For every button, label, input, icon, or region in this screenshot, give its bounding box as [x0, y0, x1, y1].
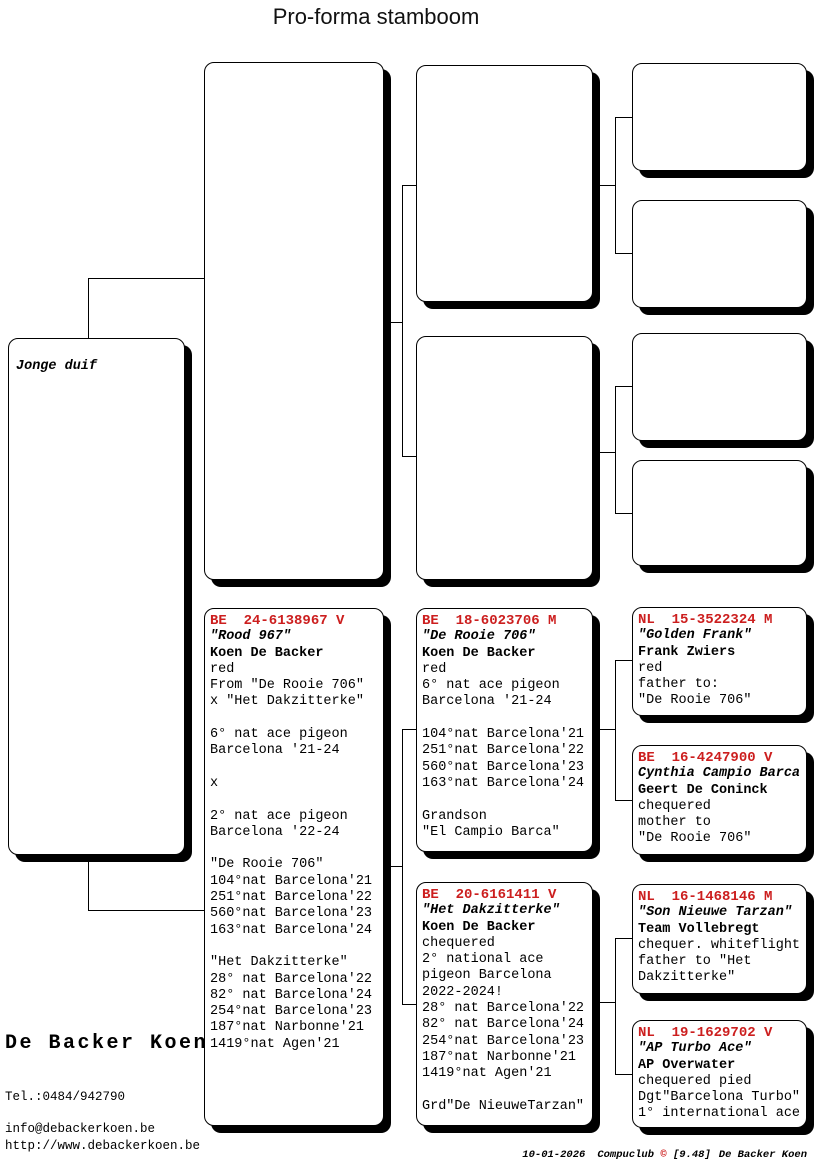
pedigree-box-dam-sire-dam: BE 16-4247900 V Cynthia Campio Barca Gee… [632, 745, 807, 855]
connector-line [615, 1074, 632, 1075]
connector-line [88, 855, 89, 911]
program-version: [9.48] [673, 1149, 711, 1161]
connector-line [615, 800, 632, 801]
connector-line [88, 910, 204, 911]
pedigree-box-sire-sire-empty [416, 65, 593, 302]
connector-line [402, 729, 403, 1005]
ring-number: BE 18-6023706 M [422, 613, 590, 629]
pigeon-name: "De Rooie 706" [422, 629, 590, 645]
pigeon-owner: Koen De Backer [210, 646, 381, 662]
pigeon-name: "Golden Frank" [638, 628, 804, 644]
connector-line [88, 278, 89, 338]
website-url: http://www.debackerkoen.be [5, 1139, 200, 1153]
print-date: 10-01-2026 [522, 1149, 585, 1161]
pedigree-box-dam-sire-sire: NL 15-3522324 M "Golden Frank" Frank Zwi… [632, 607, 807, 716]
print-footer: 10-01-2026Compuclub © [9.48]De Backer Ko… [497, 1137, 807, 1172]
connector-line [615, 938, 632, 939]
connector-line [593, 729, 615, 730]
connector-line [615, 386, 632, 387]
pigeon-owner: Koen De Backer [422, 646, 590, 662]
pigeon-owner: Team Vollebregt [638, 922, 804, 938]
pedigree-box-dam-dam: BE 20-6161411 V "Het Dakzitterke" Koen D… [416, 882, 593, 1126]
pigeon-owner: Koen De Backer [422, 920, 590, 936]
page-title: Pro-forma stamboom [0, 4, 752, 30]
ring-number: BE 16-4247900 V [638, 750, 804, 766]
connector-line [402, 456, 416, 457]
loft-owner-name: De Backer Koen [5, 1032, 208, 1055]
connector-line [402, 185, 403, 457]
footer-owner: De Backer Koen [719, 1149, 807, 1161]
phone-number: Tel.:0484/942790 [5, 1090, 125, 1104]
pedigree-box-dam-dam-sire: NL 16-1468146 M "Son Nieuwe Tarzan" Team… [632, 884, 807, 994]
pigeon-owner: Geert De Coninck [638, 783, 804, 799]
connector-line [615, 660, 616, 801]
pedigree-box-gp1-empty [632, 63, 807, 171]
connector-line [384, 322, 403, 323]
pedigree-box-gp2-empty [632, 200, 807, 308]
email-address: info@debackerkoen.be [5, 1122, 155, 1136]
connector-line [615, 117, 616, 254]
pigeon-name: Cynthia Campio Barca [638, 766, 804, 782]
ring-number: NL 16-1468146 M [638, 889, 804, 905]
connector-line [402, 729, 416, 730]
pigeon-owner: Frank Zwiers [638, 645, 804, 661]
connector-line [402, 1004, 416, 1005]
connector-line [88, 278, 204, 279]
pigeon-details: chequer. whiteflight father to "Het Dakz… [638, 938, 804, 987]
connector-line [615, 117, 632, 118]
pedigree-box-subject: Jonge duif [8, 338, 185, 855]
pigeon-details: chequered 2° national ace pigeon Barcelo… [422, 936, 590, 1115]
connector-line [384, 866, 403, 867]
ring-number: NL 15-3522324 M [638, 612, 804, 628]
pedigree-box-gp3-empty [632, 333, 807, 441]
connector-line [593, 452, 615, 453]
pigeon-owner: AP Overwater [638, 1058, 804, 1074]
pigeon-details: chequered mother to "De Rooie 706" [638, 799, 804, 848]
pigeon-details: red 6° nat ace pigeon Barcelona '21-24 1… [422, 662, 590, 841]
pigeon-name: "Rood 967" [210, 629, 381, 645]
connector-line [615, 513, 632, 514]
pedigree-box-dam-dam-dam: NL 19-1629702 V "AP Turbo Ace" AP Overwa… [632, 1020, 807, 1128]
program-name: Compuclub [597, 1149, 654, 1161]
connector-line [615, 660, 632, 661]
connector-line [593, 1002, 615, 1003]
pigeon-details: chequered pied Dgt"Barcelona Turbo" 1° i… [638, 1074, 804, 1123]
pedigree-box-dam-sire: BE 18-6023706 M "De Rooie 706" Koen De B… [416, 608, 593, 852]
connector-line [615, 386, 616, 514]
pedigree-box-gp4-empty [632, 460, 807, 566]
ring-number: BE 20-6161411 V [422, 887, 590, 903]
pedigree-box-sire-dam-empty [416, 336, 593, 580]
ring-number: BE 24-6138967 V [210, 613, 381, 629]
pedigree-box-sire-empty [204, 62, 384, 580]
pigeon-name: "Het Dakzitterke" [422, 903, 590, 919]
connector-line [402, 185, 416, 186]
pigeon-name: "Son Nieuwe Tarzan" [638, 905, 804, 921]
subject-label: Jonge duif [16, 359, 97, 374]
pigeon-details: red father to: "De Rooie 706" [638, 661, 804, 710]
pedigree-page: Pro-forma stamboom Jonge duif BE 24-6138… [0, 0, 816, 1172]
pigeon-details: red From "De Rooie 706" x "Het Dakzitter… [210, 662, 381, 1053]
pigeon-name: "AP Turbo Ace" [638, 1041, 804, 1057]
connector-line [593, 185, 615, 186]
pedigree-box-dam: BE 24-6138967 V "Rood 967" Koen De Backe… [204, 608, 384, 1126]
copyright-symbol: © [660, 1149, 666, 1161]
connector-line [615, 253, 632, 254]
connector-line [615, 938, 616, 1075]
ring-number: NL 19-1629702 V [638, 1025, 804, 1041]
